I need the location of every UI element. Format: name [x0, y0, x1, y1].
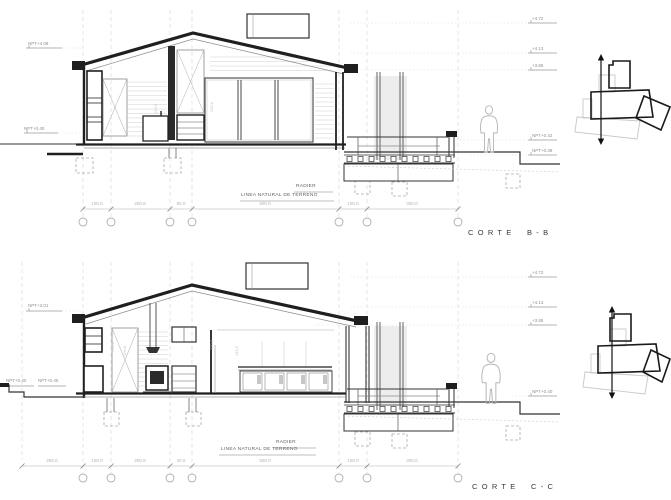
level-label: +3.85 [532, 319, 543, 324]
interior [87, 46, 204, 141]
bottom-section [0, 262, 670, 482]
radier-annotation: RADIER [276, 441, 296, 446]
terrain-annotation: LINEA NATURAL DE TERRENO [221, 448, 298, 453]
level-label: +3.85 [532, 64, 543, 69]
level-markers [24, 20, 557, 155]
person-figure [481, 106, 498, 152]
vertical-dimension-label: 100.8 [123, 346, 127, 356]
kitchen [238, 342, 332, 392]
dimension-label: 500.0 [259, 459, 270, 464]
pedestals [107, 398, 196, 412]
section-title-cc: CORTE C-C [472, 483, 557, 491]
dimension-label: 300.0 [406, 459, 417, 464]
level-label: NPT+0.40 [532, 390, 552, 395]
roof [72, 285, 368, 327]
interior [84, 303, 215, 393]
vertical-dimension-label: 240.0 [111, 342, 115, 352]
dimension-label: 500.0 [259, 202, 270, 207]
dimension-label: 80.0 [177, 202, 186, 207]
dimension-label: 250.0 [46, 459, 57, 464]
dimension-label: 100.0 [347, 459, 358, 464]
level-label: NPT+0.40 [24, 127, 44, 132]
key-plan-bb [575, 54, 670, 145]
dimension-label: 100.0 [91, 459, 102, 464]
level-label: +4.13 [532, 301, 543, 306]
vertical-dimension-label: 220.0 [210, 102, 214, 112]
dimension-label: 100.0 [91, 202, 102, 207]
dimension-line [79, 207, 462, 227]
level-label: NPT+2.01 [28, 304, 48, 309]
level-label: NPT+0.45 [38, 379, 58, 384]
level-label: +4.13 [532, 47, 543, 52]
terrain-annotation: LINEA NATURAL DE TERRENO [241, 194, 318, 199]
section-title-bb: CORTE B-B [468, 229, 552, 237]
dimension-label: 40.0 [177, 459, 186, 464]
dimension-line [20, 464, 463, 483]
vertical-dimension-label: 240.0 [154, 104, 158, 114]
section-linework [0, 0, 671, 500]
roof [72, 33, 358, 74]
chimney [247, 14, 309, 38]
footings [104, 412, 520, 448]
level-label: NPT+4.08 [28, 42, 48, 47]
level-label: +4.72 [532, 271, 543, 276]
level-label: NPT+0.40 [6, 379, 26, 384]
level-projection-lines [58, 23, 545, 155]
drawing-sheet: NPT+4.08 NPT+0.40 +4.72 +4.13 +3.85 NPT+… [0, 0, 671, 500]
deck [344, 72, 560, 181]
vertical-dimension-label: 145.0 [235, 346, 239, 356]
dimension-label: 200.8 [134, 202, 145, 207]
radier-annotation: RADIER [296, 185, 316, 190]
chimney [246, 263, 308, 289]
top-section [0, 10, 670, 226]
vertical-dimension-label: 220.0 [210, 340, 214, 350]
glazed-wall [346, 326, 369, 403]
dimension-label: 100.0 [347, 202, 358, 207]
deck [344, 322, 560, 431]
level-label: NPT+0.38 [532, 149, 552, 154]
level-label: +4.72 [532, 17, 543, 22]
dimension-label: 300.0 [406, 202, 417, 207]
key-plan-cc [583, 306, 670, 399]
person-figure [482, 353, 500, 403]
dimension-label: 200.8 [134, 459, 145, 464]
level-label: NPT+0.42 [532, 134, 552, 139]
